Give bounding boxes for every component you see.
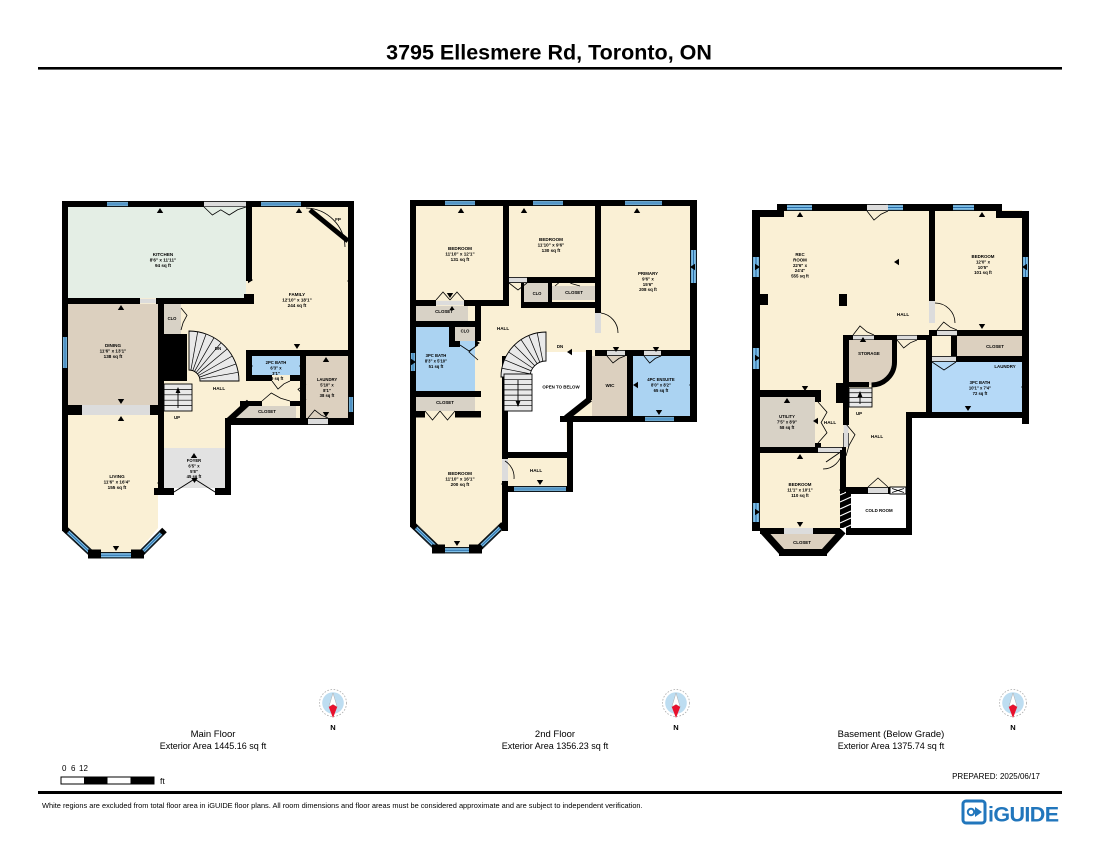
svg-text:CLO: CLO (533, 291, 543, 296)
svg-text:Basement (Below Grade): Basement (Below Grade) (838, 729, 945, 740)
svg-text:BEDROOM: BEDROOM (448, 471, 472, 476)
svg-text:DINING: DINING (105, 343, 122, 348)
svg-text:15'6": 15'6" (643, 282, 653, 287)
svg-text:8'6" x 11'11": 8'6" x 11'11" (150, 257, 176, 262)
svg-text:PREPARED: 2025/06/17: PREPARED: 2025/06/17 (952, 772, 1040, 781)
svg-text:COLD ROOM: COLD ROOM (865, 508, 893, 513)
svg-text:CLO: CLO (461, 329, 471, 334)
svg-text:110 sq ft: 110 sq ft (791, 493, 809, 498)
svg-text:10'1" x 7'4": 10'1" x 7'4" (969, 385, 991, 390)
svg-text:DN: DN (215, 346, 221, 351)
svg-text:138 sq ft: 138 sq ft (104, 354, 123, 359)
svg-text:3PC BATH: 3PC BATH (426, 353, 447, 358)
svg-text:22'6" x: 22'6" x (793, 263, 808, 268)
svg-text:208 sq ft: 208 sq ft (639, 287, 657, 292)
svg-text:ROOM: ROOM (793, 257, 807, 262)
svg-text:ft: ft (160, 776, 165, 786)
svg-text:HALL: HALL (871, 434, 883, 439)
svg-text:UP: UP (174, 415, 180, 420)
svg-text:3'1": 3'1" (272, 371, 280, 376)
svg-text:45 sq ft: 45 sq ft (187, 474, 202, 479)
svg-text:BEDROOM: BEDROOM (972, 254, 995, 259)
svg-text:101 sq ft: 101 sq ft (974, 270, 992, 275)
svg-text:FAMILY: FAMILY (289, 292, 305, 297)
svg-text:12'0" x: 12'0" x (976, 259, 991, 264)
svg-text:11'6" x 16'4": 11'6" x 16'4" (104, 479, 131, 484)
svg-text:CLO: CLO (168, 316, 178, 321)
svg-text:5'10" x: 5'10" x (320, 382, 334, 387)
svg-text:KITCHEN: KITCHEN (153, 252, 174, 257)
svg-text:CLOSET: CLOSET (435, 309, 453, 314)
svg-text:11'10" x 12'1": 11'10" x 12'1" (445, 251, 474, 256)
svg-text:3PC BATH: 3PC BATH (970, 380, 991, 385)
svg-text:REC: REC (795, 252, 805, 257)
svg-text:555 sq ft: 555 sq ft (791, 274, 809, 279)
svg-text:8'0" x 8'2": 8'0" x 8'2" (651, 382, 671, 387)
svg-text:CLOSET: CLOSET (258, 409, 276, 414)
svg-text:CLOSET: CLOSET (436, 400, 454, 405)
svg-text:N: N (673, 723, 678, 732)
svg-text:FOYER: FOYER (187, 458, 201, 463)
svg-text:155 sq ft: 155 sq ft (108, 485, 127, 490)
svg-text:12: 12 (79, 764, 88, 773)
svg-text:244 sq ft: 244 sq ft (288, 303, 307, 308)
svg-text:2nd Floor: 2nd Floor (535, 729, 575, 740)
svg-text:BEDROOM: BEDROOM (789, 482, 812, 487)
svg-text:11'6" x 13'1": 11'6" x 13'1" (100, 348, 127, 353)
svg-text:BEDROOM: BEDROOM (539, 237, 563, 242)
svg-text:iGUIDE: iGUIDE (988, 803, 1059, 827)
svg-text:CLOSET: CLOSET (565, 290, 583, 295)
svg-text:Exterior Area 1375.74 sq ft: Exterior Area 1375.74 sq ft (838, 741, 945, 751)
svg-text:8'3" x 5'10": 8'3" x 5'10" (425, 358, 447, 363)
svg-text:6'3" x: 6'3" x (270, 365, 282, 370)
svg-text:12'10" x 18'1": 12'10" x 18'1" (282, 297, 312, 302)
svg-text:HALL: HALL (824, 420, 836, 425)
svg-text:N: N (1010, 723, 1015, 732)
svg-text:UP: UP (856, 411, 862, 416)
svg-text:Exterior Area 1445.16 sq ft: Exterior Area 1445.16 sq ft (160, 741, 267, 751)
svg-text:11'1" x 10'1": 11'1" x 10'1" (787, 487, 813, 492)
svg-text:19 sq ft: 19 sq ft (269, 376, 284, 381)
svg-text:LIVING: LIVING (109, 474, 125, 479)
svg-text:LAUNDRY: LAUNDRY (994, 364, 1015, 369)
svg-text:7'5" x 8'9": 7'5" x 8'9" (777, 419, 797, 424)
svg-text:11'10" x 9'6": 11'10" x 9'6" (538, 242, 565, 247)
svg-text:STORAGE: STORAGE (858, 351, 880, 356)
svg-text:6'5" x: 6'5" x (188, 463, 200, 468)
svg-text:CLOSET: CLOSET (986, 344, 1004, 349)
svg-text:4PC ENSUITE: 4PC ENSUITE (647, 377, 675, 382)
svg-text:PRIMARY: PRIMARY (638, 271, 658, 276)
svg-text:8'1": 8'1" (323, 388, 331, 393)
svg-text:HALL: HALL (497, 326, 509, 331)
svg-text:White regions are excluded fro: White regions are excluded from total fl… (42, 801, 643, 810)
svg-text:6: 6 (71, 764, 76, 773)
svg-text:0: 0 (62, 764, 67, 773)
svg-text:2PC BATH: 2PC BATH (266, 360, 287, 365)
svg-text:BEDROOM: BEDROOM (448, 246, 472, 251)
svg-text:OPEN TO BELOW: OPEN TO BELOW (542, 385, 580, 390)
svg-text:130 sq ft: 130 sq ft (542, 248, 561, 253)
svg-text:N: N (330, 723, 335, 732)
svg-text:3795 Ellesmere Rd, Toronto, ON: 3795 Ellesmere Rd, Toronto, ON (386, 41, 712, 65)
svg-text:UTILITY: UTILITY (779, 414, 795, 419)
svg-text:9'6" x: 9'6" x (642, 276, 654, 281)
svg-text:HALL: HALL (897, 312, 909, 317)
svg-text:11'10" x 16'1": 11'10" x 16'1" (445, 476, 474, 481)
svg-text:CLOSET: CLOSET (793, 540, 811, 545)
svg-text:131 sq ft: 131 sq ft (451, 257, 470, 262)
svg-text:65 sq ft: 65 sq ft (654, 388, 669, 393)
svg-text:Exterior Area 1356.23 sq ft: Exterior Area 1356.23 sq ft (502, 741, 609, 751)
svg-text:38 sq ft: 38 sq ft (320, 393, 335, 398)
svg-text:DN: DN (557, 344, 563, 349)
svg-text:LAUNDRY: LAUNDRY (317, 377, 338, 382)
svg-text:Main Floor: Main Floor (191, 729, 236, 740)
svg-text:51 sq ft: 51 sq ft (429, 364, 444, 369)
svg-text:HALL: HALL (530, 468, 542, 473)
svg-text:FP: FP (335, 217, 341, 222)
svg-text:WIC: WIC (606, 383, 616, 388)
svg-text:10'5": 10'5" (978, 265, 988, 270)
svg-text:72 sq ft: 72 sq ft (973, 391, 988, 396)
svg-text:HALL: HALL (213, 386, 225, 391)
svg-text:200 sq ft: 200 sq ft (451, 482, 470, 487)
svg-text:24'4": 24'4" (795, 268, 805, 273)
svg-text:5'8": 5'8" (190, 469, 198, 474)
svg-text:58 sq ft: 58 sq ft (780, 425, 795, 430)
svg-text:94 sq ft: 94 sq ft (155, 263, 172, 268)
